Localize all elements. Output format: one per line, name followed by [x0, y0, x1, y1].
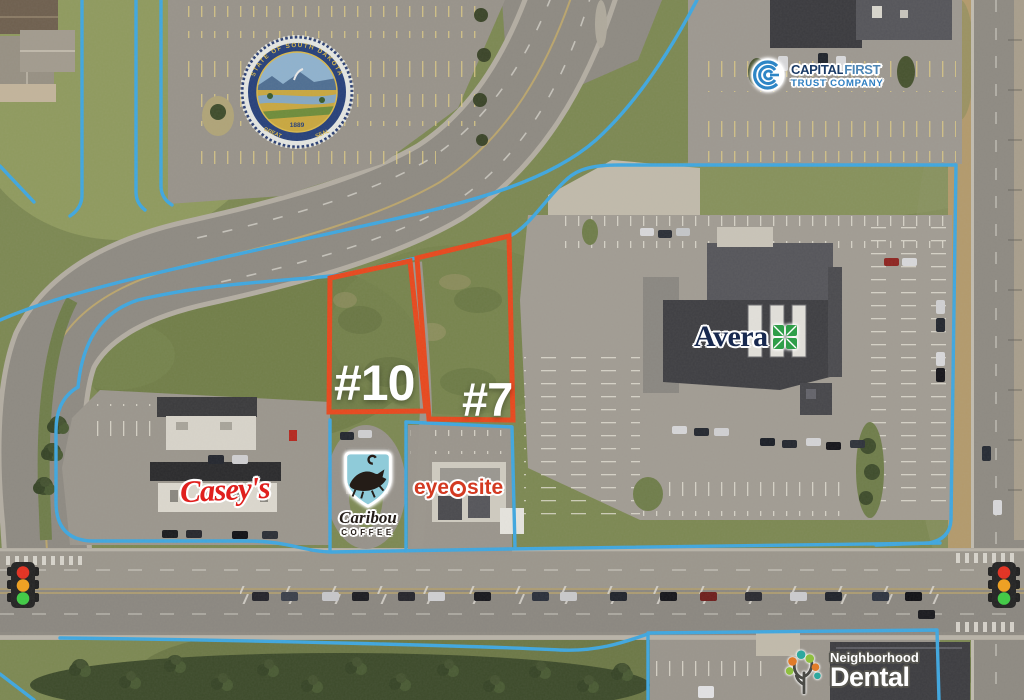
capital-first-name-light: FIRST [844, 62, 880, 77]
capital-first-name-bold: CAPITAL [791, 62, 844, 77]
caribou-coffee-logo: Caribou COFFEE [320, 450, 416, 537]
capital-first-logo: CAPITALFIRST TRUST COMPANY [750, 57, 884, 93]
aerial-photo: STATE OF SOUTH DAKOTA GREAT SEAL 1889 [0, 0, 1024, 700]
avera-logo: Avera [694, 320, 798, 354]
eye-site-part1: eye [414, 476, 449, 500]
capital-first-subtitle: TRUST COMPANY [791, 78, 884, 89]
caribou-shield-icon [339, 450, 397, 510]
eye-site-logo: eye site [414, 476, 503, 500]
dental-line2: Dental [830, 664, 919, 691]
eye-site-part2: site [467, 476, 503, 500]
neighborhood-dental-logo: Neighborhood Dental [782, 648, 919, 694]
parcel-7-label: #7 [462, 372, 512, 427]
avera-logo-text: Avera [694, 320, 768, 354]
photo-grain [0, 0, 1024, 700]
avera-cross-icon [772, 324, 798, 350]
eye-icon [450, 481, 466, 497]
caseys-logo: Casey's [179, 470, 270, 511]
parcel-10-label: #10 [334, 354, 414, 412]
caribou-subtitle: COFFEE [341, 528, 394, 537]
dental-tree-icon [782, 648, 826, 694]
aerial-map: STATE OF SOUTH DAKOTA GREAT SEAL 1889 CA… [0, 0, 1024, 700]
capital-first-logo-icon [750, 57, 786, 93]
caribou-name: Caribou [339, 508, 397, 528]
